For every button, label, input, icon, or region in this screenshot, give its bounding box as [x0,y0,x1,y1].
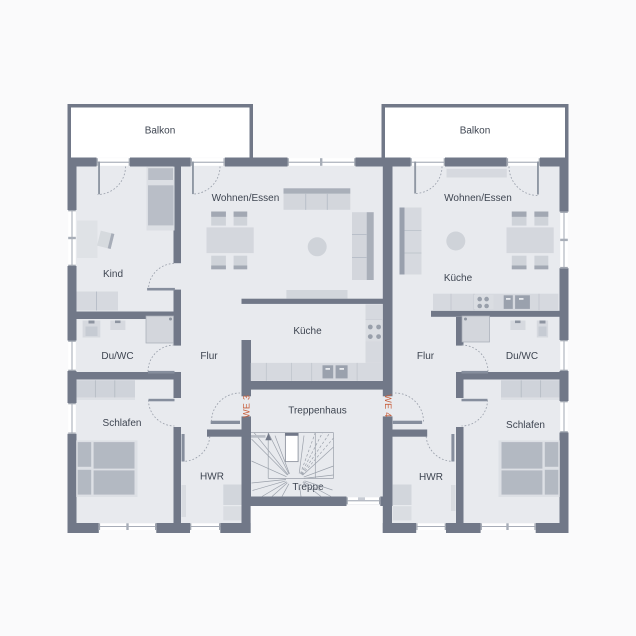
svg-text:Du/WC: Du/WC [101,351,133,362]
svg-text:Flur: Flur [417,351,435,362]
svg-text:Wohnen/Essen: Wohnen/Essen [444,193,512,204]
svg-text:WE 4: WE 4 [383,394,393,417]
svg-text:Balkon: Balkon [460,126,491,137]
svg-text:Schlafen: Schlafen [103,418,142,429]
svg-text:Treppe: Treppe [292,482,324,493]
svg-text:Küche: Küche [444,273,473,284]
svg-text:Schlafen: Schlafen [506,420,545,431]
svg-text:HWR: HWR [419,472,443,483]
svg-text:Balkon: Balkon [145,126,176,137]
svg-text:Treppenhaus: Treppenhaus [288,406,347,417]
svg-text:HWR: HWR [200,472,224,483]
svg-text:WE 3: WE 3 [242,395,252,418]
svg-text:Wohnen/Essen: Wohnen/Essen [212,193,280,204]
svg-text:Kind: Kind [103,269,123,280]
svg-text:Flur: Flur [200,351,218,362]
svg-text:Du/WC: Du/WC [506,351,538,362]
svg-text:Küche: Küche [293,326,322,337]
